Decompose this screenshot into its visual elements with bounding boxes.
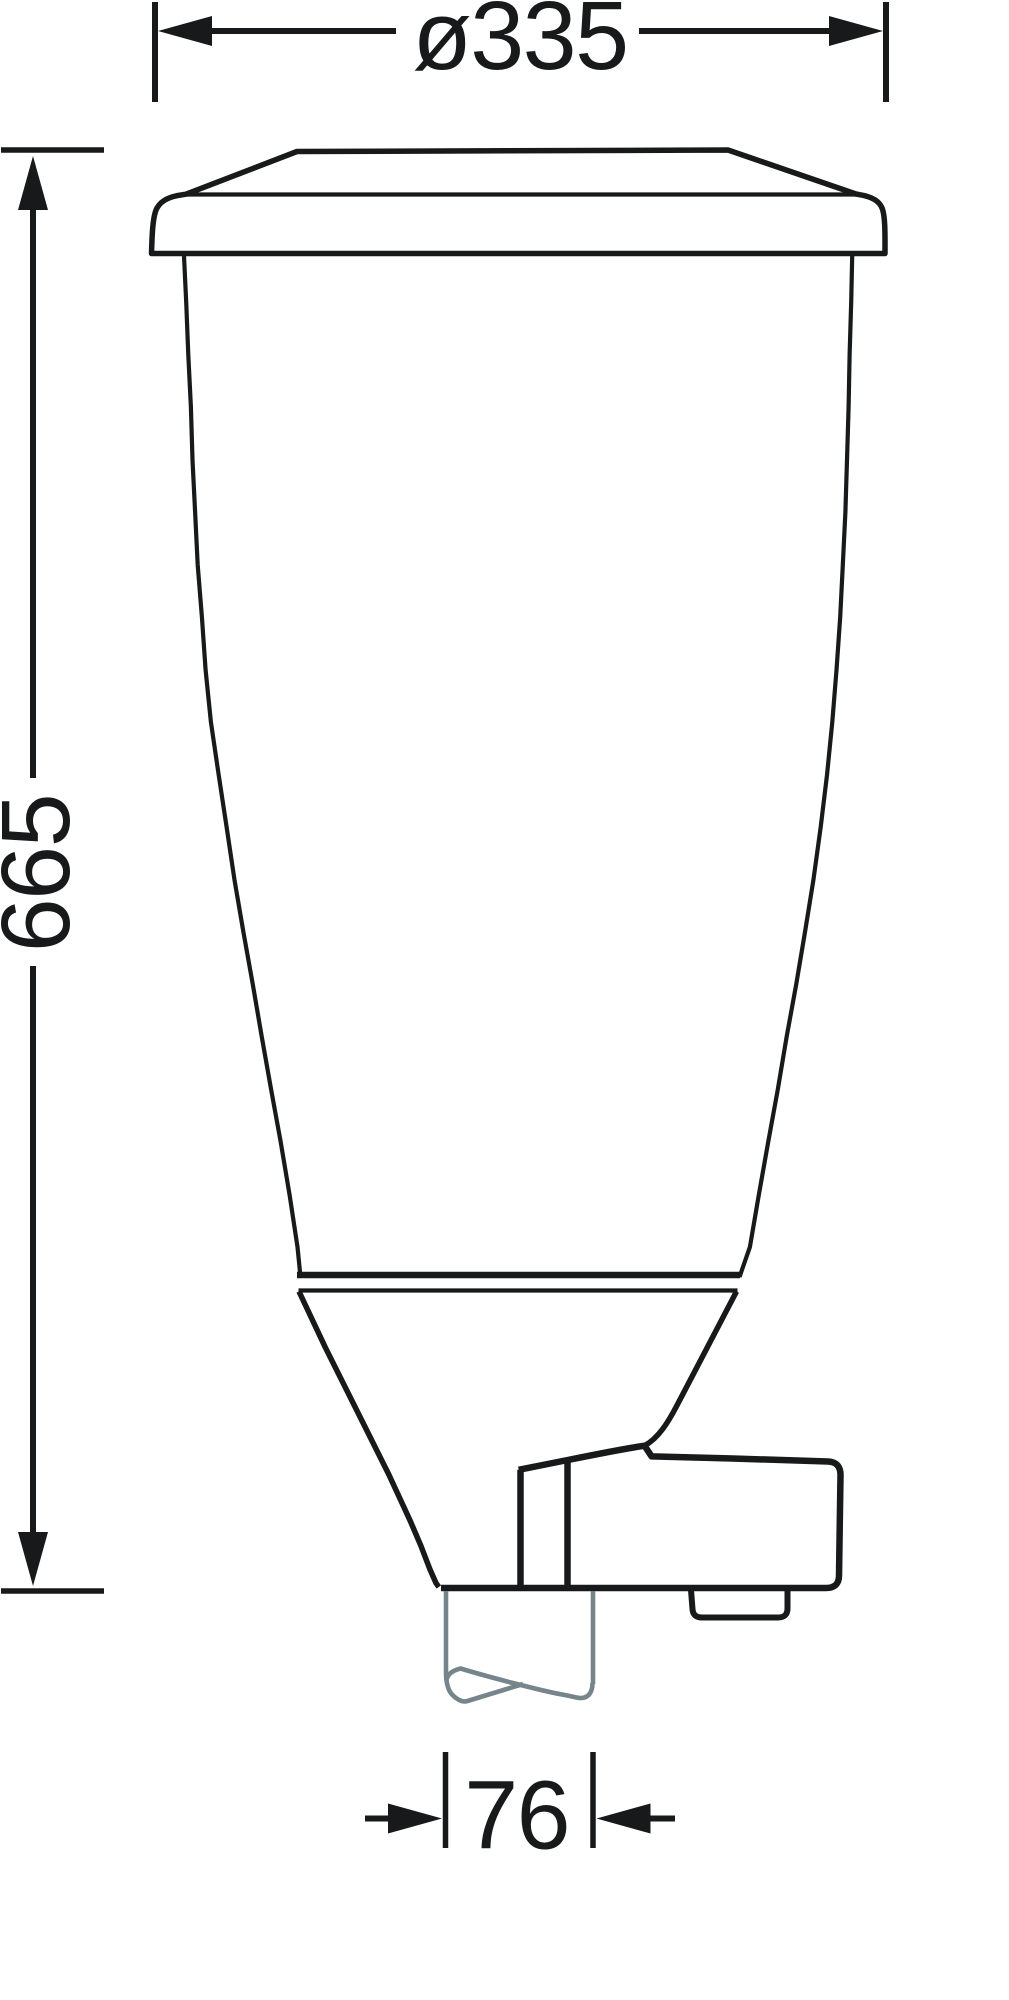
svg-text:665: 665	[0, 795, 90, 952]
svg-text:ø335: ø335	[412, 0, 627, 90]
svg-text:76: 76	[464, 1761, 569, 1870]
